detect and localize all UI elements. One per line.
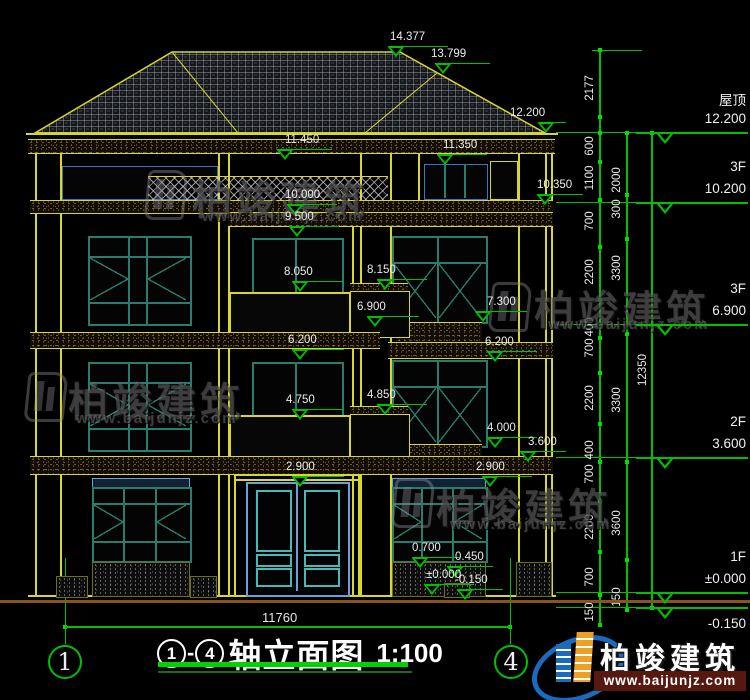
spot-line (537, 194, 583, 196)
spot-line (475, 311, 527, 313)
spot-level-text: 6.200 (288, 334, 317, 346)
watermark-url: www.baijunjz.com (450, 516, 611, 533)
spot-level-text: 8.150 (367, 264, 396, 276)
spot-line (292, 409, 344, 411)
width-dim-text: 11760 (262, 610, 297, 625)
ground-line (0, 600, 750, 603)
door-panel (256, 568, 292, 587)
spot-level-text: 7.300 (487, 296, 516, 308)
spot-line (487, 351, 537, 353)
spot-line (482, 476, 532, 478)
spot-level-text: 2.900 (476, 461, 505, 473)
level-line (636, 202, 748, 204)
floor-elevation: 10.200 (636, 181, 746, 196)
floor-name: 3F (636, 159, 746, 174)
logo-building-blue (556, 644, 571, 682)
spot-level-text: 0.450 (455, 551, 484, 563)
slab-6200 (30, 332, 380, 349)
floor-name: 屋顶 (636, 89, 746, 109)
roof-outline (35, 52, 545, 133)
spot-level-text: 4.850 (367, 389, 396, 401)
watermark-url: www.baijunjz.com (202, 208, 363, 225)
floor-elevation: 6.900 (636, 303, 746, 318)
spot-level-text: 6.900 (357, 301, 386, 313)
spot-line (292, 281, 344, 283)
door-panel (304, 568, 340, 587)
spot-line (457, 589, 503, 591)
spot-line (377, 404, 427, 406)
base-block (190, 576, 217, 598)
spot-line (435, 63, 490, 65)
spot-line (447, 566, 493, 568)
floor-name: 3F (636, 281, 746, 296)
elevation-drawing-canvas: 1 - 4 轴立面图 1:100 1 4 11760 柏竣建筑 www.baij… (0, 0, 750, 700)
watermark-logo-icon (23, 372, 68, 422)
spot-level-text: 4.750 (286, 394, 315, 406)
spot-level-text: 14.377 (390, 31, 425, 43)
spot-level-text: 8.050 (284, 266, 313, 278)
floor-elevation: 3.600 (636, 436, 746, 451)
door-panel (304, 554, 340, 567)
floor-name: 1F (636, 549, 746, 564)
window-mullion (128, 238, 130, 324)
level-line (636, 324, 748, 326)
spot-line (292, 349, 344, 351)
window-3f-left (88, 236, 192, 326)
door-panel (256, 490, 292, 552)
spot-line (520, 451, 566, 453)
door-panel (304, 490, 340, 552)
spot-line (412, 557, 460, 559)
level-line (636, 132, 748, 134)
entrance-door (246, 482, 350, 597)
bay-wall (350, 414, 410, 461)
spot-level-text: 10.350 (537, 179, 572, 191)
spot-level-text: 10.000 (285, 189, 320, 201)
watermark-logo-icon (390, 478, 435, 528)
spot-line (437, 154, 487, 156)
spot-level-text: 2.900 (286, 461, 315, 473)
width-dim-line (65, 626, 510, 628)
window-mullion (90, 428, 190, 430)
axis-bubble-4: 4 (494, 645, 528, 679)
spot-line (538, 122, 566, 124)
balcony-rail (230, 415, 350, 461)
spandrel-1f-left (92, 562, 190, 597)
spot-level-text: 9.500 (285, 211, 314, 223)
spot-line (377, 279, 427, 281)
casement-pane (157, 505, 186, 539)
spot-level-text: 4.000 (487, 422, 516, 434)
door-panel (256, 554, 292, 567)
bay-wall (350, 291, 410, 338)
spot-level-text: 11.450 (285, 134, 319, 146)
casement-pane (439, 388, 481, 442)
floor-elevation: ±0.000 (636, 571, 746, 586)
watermark-url: www.baijunjz.com (76, 410, 237, 427)
window-mullion (90, 302, 190, 304)
spot-level-text: 13.799 (431, 48, 466, 60)
spot-level-text: 6.200 (485, 336, 514, 348)
casement-pane (148, 258, 186, 300)
spot-level-text: 0.700 (412, 542, 441, 554)
title-underline (158, 662, 408, 667)
spot-line (277, 149, 332, 151)
window-mullion (94, 541, 190, 543)
title-underline-thin (158, 671, 412, 673)
level-line (636, 607, 748, 609)
level-line (636, 592, 748, 594)
spot-level-text: 11.350 (443, 139, 477, 151)
logo-url: www.baijunjz.com (594, 671, 746, 691)
window-mullion (123, 489, 125, 561)
spot-level-text: -0.150 (455, 574, 488, 586)
floor-name: 2F (636, 414, 746, 429)
floor-elevation: 12.200 (636, 111, 746, 126)
axis-bubble-1: 1 (48, 645, 82, 679)
base-block (56, 576, 88, 598)
casement-pane (94, 505, 123, 539)
casement-pane (90, 258, 128, 300)
door-leaf-divider (296, 484, 298, 591)
title-text: 轴立面图 (228, 629, 364, 677)
logo-building-orange (573, 632, 593, 682)
spot-line (289, 226, 339, 228)
spot-level-text: 3.600 (528, 436, 557, 448)
drawing-title: 1 - 4 轴立面图 1:100 (157, 629, 443, 677)
spot-line (287, 204, 337, 206)
spot-level-text: 12.200 (510, 107, 545, 119)
watermark-logo-icon (143, 170, 188, 220)
level-line (636, 457, 748, 459)
spot-line (367, 316, 419, 318)
base-block (516, 562, 552, 597)
spot-line (388, 46, 448, 48)
spot-line (292, 476, 344, 478)
window-1f-left (92, 487, 192, 563)
